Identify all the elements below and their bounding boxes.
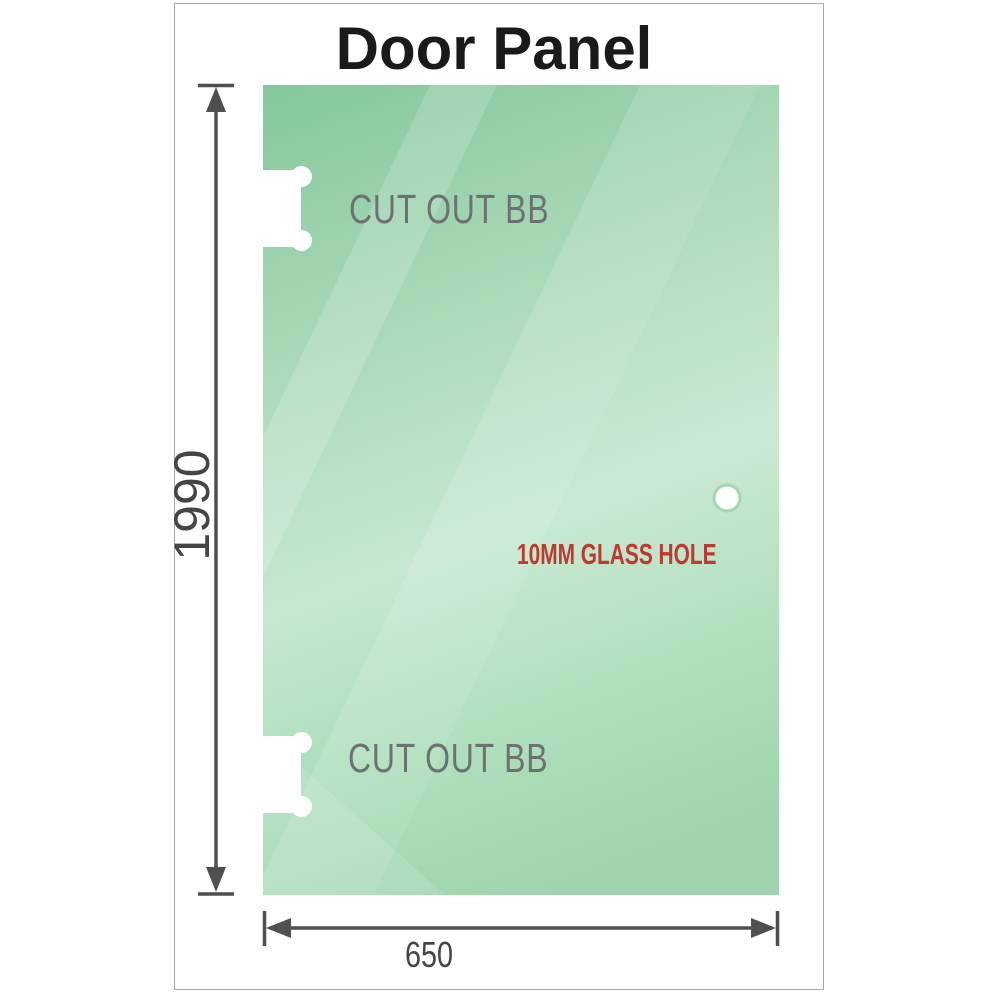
panel-drawing [0,0,1000,1000]
width-dimension-value: 650 [381,934,477,976]
arrowhead-right-icon [751,918,776,938]
height-dimension-value: 1990 [162,430,222,580]
glass-hole-label: 10MM GLASS HOLE [517,539,717,572]
top-cutout-label: CUT OUT BB [349,186,549,233]
glass-hole [714,485,740,511]
door-panel-diagram: Door Panel [0,0,1000,1000]
arrowhead-down-icon [206,867,226,892]
arrowhead-up-icon [206,87,226,112]
width-dimension-line [265,911,778,946]
arrowhead-left-icon [266,918,291,938]
bottom-cutout-label: CUT OUT BB [348,735,548,782]
